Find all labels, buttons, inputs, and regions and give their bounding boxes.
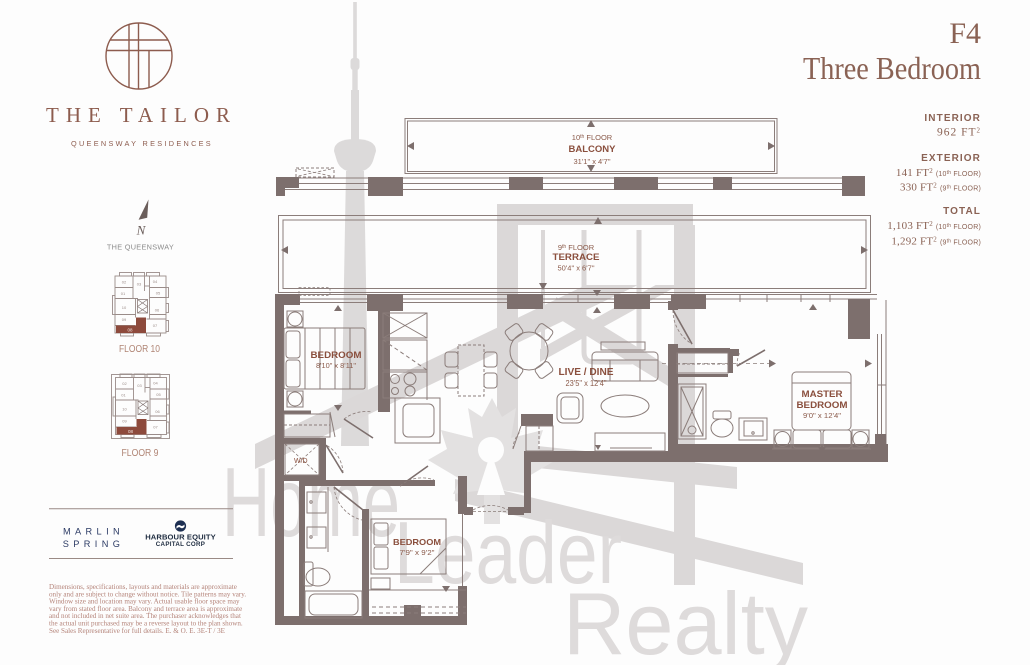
svg-text:THE TAILOR: THE TAILOR [46,103,237,127]
svg-text:Three Bedroom: Three Bedroom [803,50,981,86]
svg-text:TOTAL: TOTAL [943,206,981,217]
svg-text:02: 02 [122,280,127,285]
svg-text:06: 06 [155,308,160,313]
svg-text:TERRACE: TERRACE [553,252,600,262]
svg-text:1,103 FT2(10th FLOOR): 1,103 FT2(10th FLOOR) [887,220,981,232]
svg-text:Realty: Realty [563,574,808,665]
svg-text:LIVE / DINE: LIVE / DINE [559,367,614,378]
svg-text:962 FT2: 962 FT2 [937,127,981,139]
svg-text:09: 09 [122,317,127,322]
svg-text:EXTERIOR: EXTERIOR [921,153,981,164]
svg-text:THE QUEENSWAY: THE QUEENSWAY [107,243,174,252]
svg-text:See Sales Representative for f: See Sales Representative for full detail… [49,627,225,635]
svg-text:9'0" x 12'4": 9'0" x 12'4" [803,411,841,420]
svg-text:CAPITAL CORP: CAPITAL CORP [156,541,205,548]
svg-text:N: N [136,223,147,238]
svg-text:141 FT2(10th FLOOR): 141 FT2(10th FLOOR) [896,167,981,179]
svg-text:23'5" x 12'4": 23'5" x 12'4" [566,379,607,388]
svg-text:BEDROOM: BEDROOM [311,350,362,361]
svg-text:MASTER: MASTER [802,389,843,400]
svg-text:FLOOR 10: FLOOR 10 [119,343,160,355]
svg-text:07: 07 [153,323,158,328]
svg-text:04: 04 [153,279,158,284]
svg-text:10: 10 [122,305,127,310]
svg-text:QUEENSWAY RESIDENCES: QUEENSWAY RESIDENCES [71,139,213,148]
svg-text:1,292 FT2(9th FLOOR): 1,292 FT2(9th FLOOR) [891,236,981,248]
svg-text:MARLIN: MARLIN [63,527,124,537]
svg-text:8'10" x 8'11": 8'10" x 8'11" [316,361,356,370]
svg-text:50'4" x 6'7": 50'4" x 6'7" [558,264,595,273]
svg-text:SPRING: SPRING [63,539,125,549]
svg-text:BALCONY: BALCONY [569,144,616,154]
svg-text:05: 05 [156,291,161,296]
svg-text:330 FT2(9th FLOOR): 330 FT2(9th FLOOR) [900,182,981,194]
svg-text:INTERIOR: INTERIOR [924,113,981,124]
svg-text:BEDROOM: BEDROOM [393,537,441,547]
svg-text:FLOOR 9: FLOOR 9 [122,447,159,459]
svg-text:F4: F4 [949,17,981,50]
svg-text:31'1" x 4'7": 31'1" x 4'7" [574,157,611,166]
svg-text:01: 01 [121,291,126,296]
svg-text:W/D: W/D [294,458,308,465]
svg-text:BEDROOM: BEDROOM [797,400,848,411]
svg-text:7'9" x 9'2": 7'9" x 9'2" [400,550,436,557]
svg-text:9th FLOOR: 9th FLOOR [558,243,595,252]
svg-text:10th FLOOR: 10th FLOOR [572,133,613,142]
svg-text:03: 03 [137,282,142,287]
svg-text:Home: Home [222,447,400,557]
svg-text:08: 08 [127,328,133,333]
